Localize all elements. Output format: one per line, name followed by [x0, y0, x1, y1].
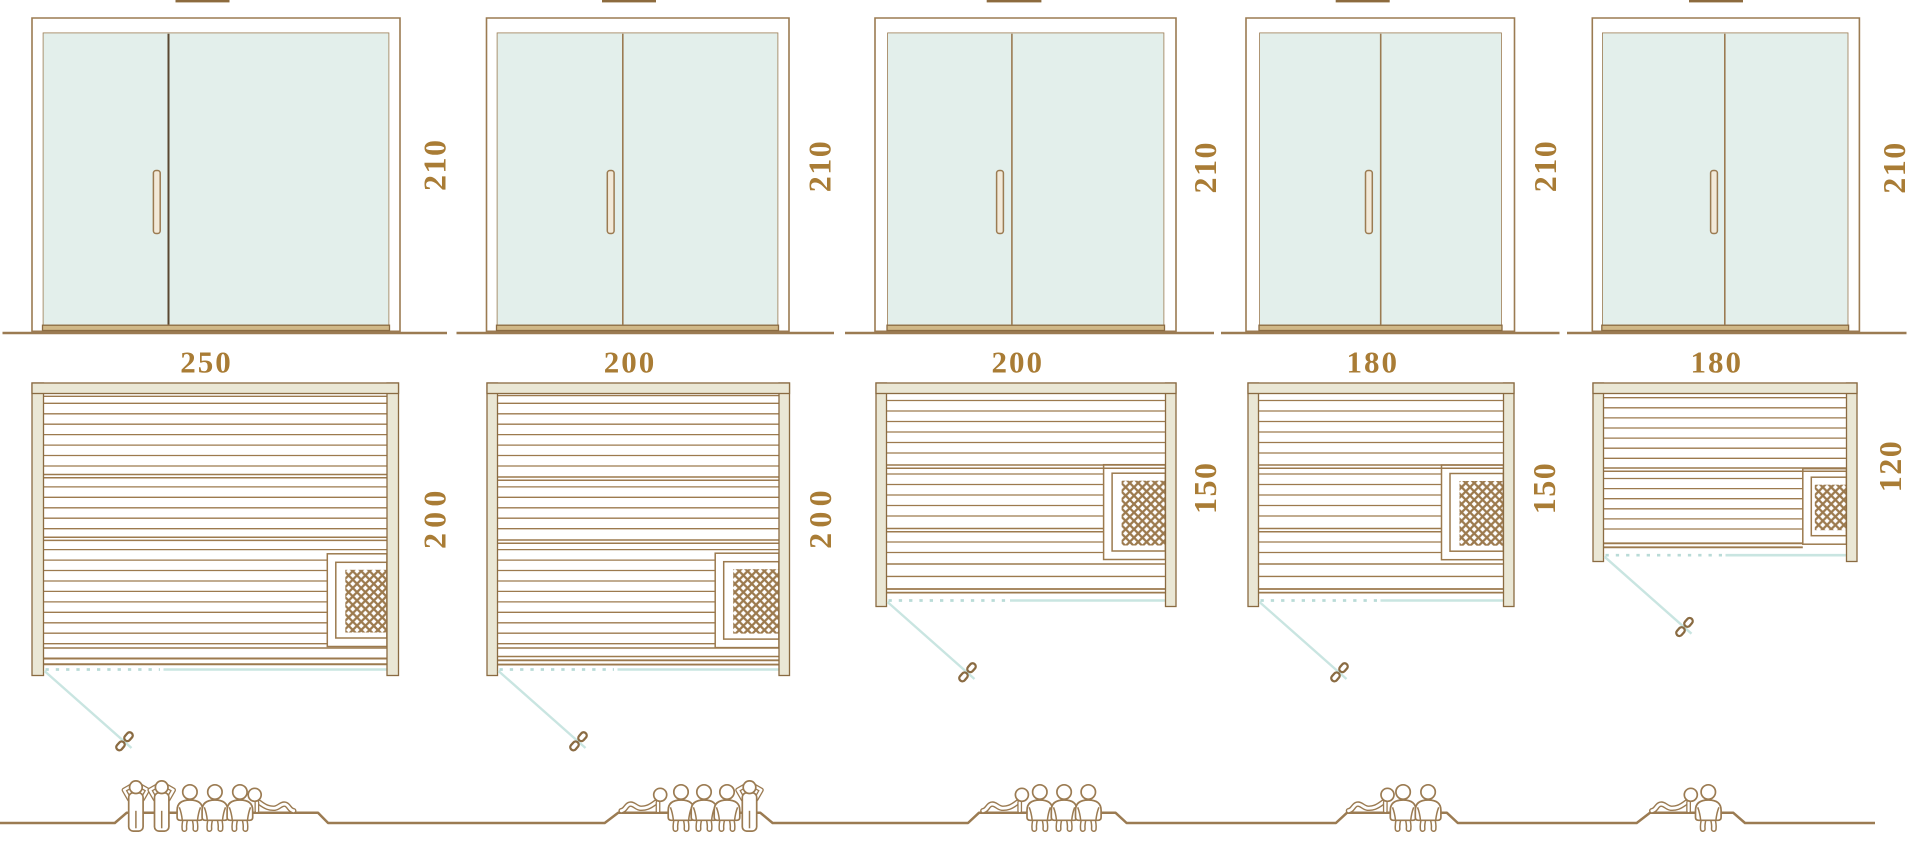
svg-text:250: 250 — [180, 345, 233, 380]
svg-text:120: 120 — [1872, 440, 1908, 493]
svg-text:210: 210 — [1876, 141, 1912, 194]
svg-text:210: 210 — [1187, 141, 1223, 194]
svg-text:210: 210 — [802, 140, 838, 193]
svg-text:180: 180 — [1347, 345, 1400, 380]
svg-text:200: 200 — [604, 345, 657, 380]
svg-text:210: 210 — [1527, 140, 1563, 193]
svg-text:200: 200 — [417, 485, 453, 549]
svg-text:200: 200 — [802, 485, 838, 549]
svg-text:180: 180 — [1691, 345, 1744, 380]
svg-text:150: 150 — [1526, 462, 1562, 515]
svg-text:210: 210 — [416, 139, 452, 192]
svg-text:200: 200 — [992, 345, 1045, 380]
svg-text:150: 150 — [1187, 461, 1223, 514]
